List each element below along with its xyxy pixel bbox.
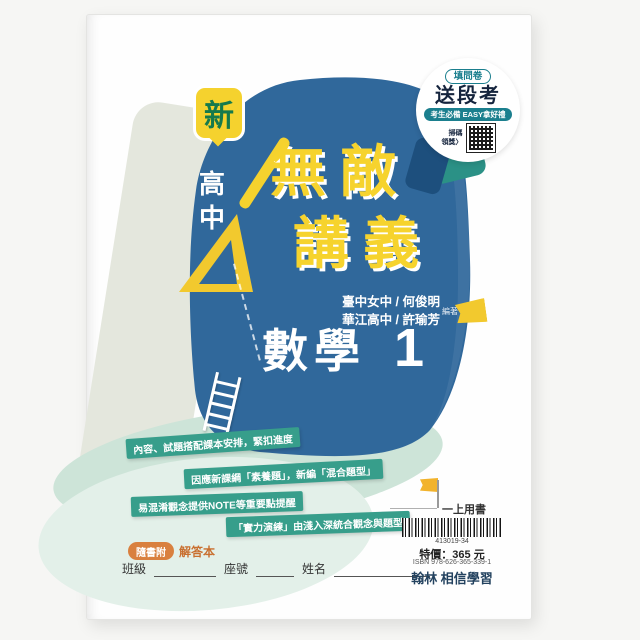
class-label: 班級 xyxy=(122,560,146,577)
ladder-rung xyxy=(207,412,232,420)
flag-pole xyxy=(437,480,439,508)
publisher-logo-text: 翰林 相信學習 xyxy=(396,568,508,587)
usage-label: 一上用書 xyxy=(442,501,486,517)
barcode-number: 413019-34 xyxy=(402,538,502,545)
bonus-row: 隨書附 解答本 xyxy=(128,542,215,560)
seat-blank-line xyxy=(256,563,294,577)
promo-headline: 送段考 xyxy=(435,84,501,108)
ladder-rung xyxy=(212,391,237,399)
promo-scan-row: 掃碼 領獎〉 xyxy=(442,124,495,152)
divider-line xyxy=(390,508,437,509)
student-fields-row: 班級 座號 姓名 xyxy=(122,560,430,577)
subject-row: 數學 1 xyxy=(262,324,424,374)
promo-circle-badge: 填問卷 送段考 考生必備 EASY拿好禮 掃碼 領獎〉 xyxy=(416,58,520,162)
barcode xyxy=(402,518,502,537)
ladder-rung xyxy=(205,423,230,431)
new-badge: 新 xyxy=(196,88,242,138)
scan-text: 掃碼 xyxy=(442,129,463,138)
name-label: 姓名 xyxy=(302,560,326,577)
promo-tag: 填問卷 xyxy=(445,69,492,84)
isbn-label: ISBN 978-626-365-339-1 xyxy=(392,559,512,566)
subject-name: 數學 xyxy=(262,328,366,374)
triangle-ruler-icon xyxy=(175,210,257,298)
bonus-badge: 隨書附 xyxy=(128,542,174,560)
class-blank-line xyxy=(154,563,216,577)
promo-subline: 考生必備 EASY拿好禮 xyxy=(424,108,511,121)
promo-scan-label: 掃碼 領獎〉 xyxy=(442,129,463,147)
new-badge-label: 新 xyxy=(204,91,234,135)
usage-flag-icon xyxy=(420,478,438,492)
subject-volume: 1 xyxy=(394,324,424,374)
claim-text: 領獎〉 xyxy=(442,138,463,147)
author-line1: 臺中女中 / 何俊明 xyxy=(250,294,440,312)
qr-code-icon xyxy=(467,124,495,152)
bonus-text: 解答本 xyxy=(179,543,215,560)
author-role-label: 編著 xyxy=(442,306,458,317)
product-photo: 填問卷 送段考 考生必備 EASY拿好禮 掃碼 領獎〉 新 高中 無敵 講義 臺… xyxy=(0,0,640,640)
book-title-line2: 講義 xyxy=(293,216,433,272)
ladder-rung xyxy=(215,380,240,388)
book-title-line1: 無敵 xyxy=(270,144,410,200)
ladder-rung xyxy=(210,401,235,409)
seat-label: 座號 xyxy=(224,560,248,577)
